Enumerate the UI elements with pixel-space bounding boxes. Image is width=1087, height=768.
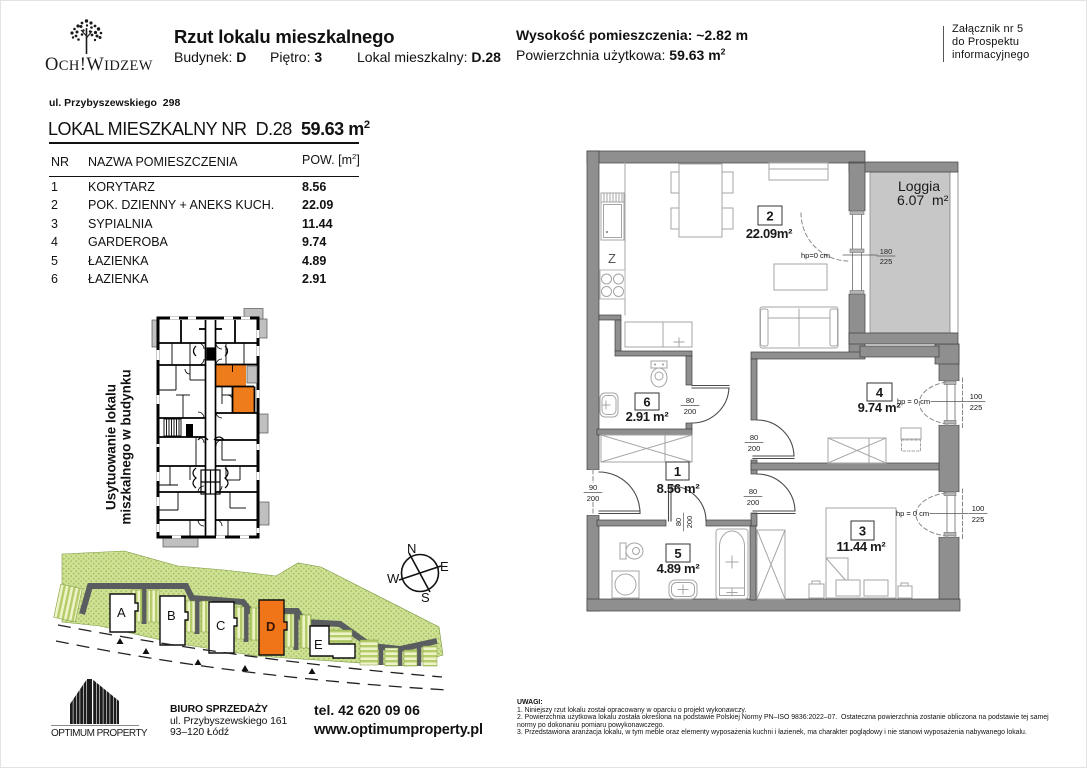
svg-text:1: 1 bbox=[674, 464, 681, 479]
svg-text:hp=0 cm: hp=0 cm bbox=[801, 251, 830, 260]
svg-text:E: E bbox=[440, 559, 449, 574]
svg-text:11.44 m²: 11.44 m² bbox=[837, 539, 887, 554]
svg-text:6.07 m²: 6.07 m² bbox=[897, 192, 949, 208]
svg-text:A: A bbox=[117, 605, 126, 620]
svg-text:80: 80 bbox=[750, 433, 758, 442]
svg-text:225: 225 bbox=[970, 403, 983, 412]
svg-text:225: 225 bbox=[972, 515, 985, 524]
svg-text:4: 4 bbox=[876, 385, 884, 400]
svg-text:3: 3 bbox=[859, 524, 866, 539]
svg-text:90: 90 bbox=[589, 483, 597, 492]
svg-text:200: 200 bbox=[684, 407, 697, 416]
svg-text:22.09m²: 22.09m² bbox=[746, 226, 793, 241]
svg-text:2: 2 bbox=[766, 209, 773, 224]
svg-text:C: C bbox=[216, 618, 225, 633]
svg-text:D: D bbox=[266, 619, 275, 634]
svg-text:200: 200 bbox=[747, 498, 760, 507]
svg-text:200: 200 bbox=[748, 444, 761, 453]
svg-text:100: 100 bbox=[972, 504, 985, 513]
svg-text:B: B bbox=[167, 608, 176, 623]
svg-text:5: 5 bbox=[674, 546, 681, 561]
svg-text:80: 80 bbox=[686, 396, 694, 405]
svg-text:S: S bbox=[421, 590, 430, 605]
svg-text:200: 200 bbox=[685, 516, 694, 529]
svg-text:9.74 m²: 9.74 m² bbox=[858, 400, 902, 415]
svg-text:Z: Z bbox=[608, 251, 616, 266]
svg-text:6: 6 bbox=[643, 395, 650, 410]
svg-text:4.89 m²: 4.89 m² bbox=[657, 561, 701, 576]
svg-text:80: 80 bbox=[674, 518, 683, 526]
svg-text:225: 225 bbox=[880, 257, 893, 266]
svg-text:OCH!WIDZEW: OCH!WIDZEW bbox=[45, 55, 153, 74]
svg-text:hp = 0 cm: hp = 0 cm bbox=[896, 509, 929, 518]
svg-text:8.56 m²: 8.56 m² bbox=[657, 481, 701, 496]
svg-text:100: 100 bbox=[970, 392, 983, 401]
svg-text:200: 200 bbox=[587, 494, 600, 503]
svg-text:W: W bbox=[387, 571, 400, 586]
svg-text:80: 80 bbox=[749, 487, 757, 496]
svg-text:2.91 m²: 2.91 m² bbox=[626, 409, 670, 424]
svg-text:N: N bbox=[407, 541, 416, 556]
svg-text:180: 180 bbox=[880, 247, 893, 256]
svg-text:E: E bbox=[314, 637, 323, 652]
svg-text:hp = 0 cm: hp = 0 cm bbox=[897, 397, 930, 406]
